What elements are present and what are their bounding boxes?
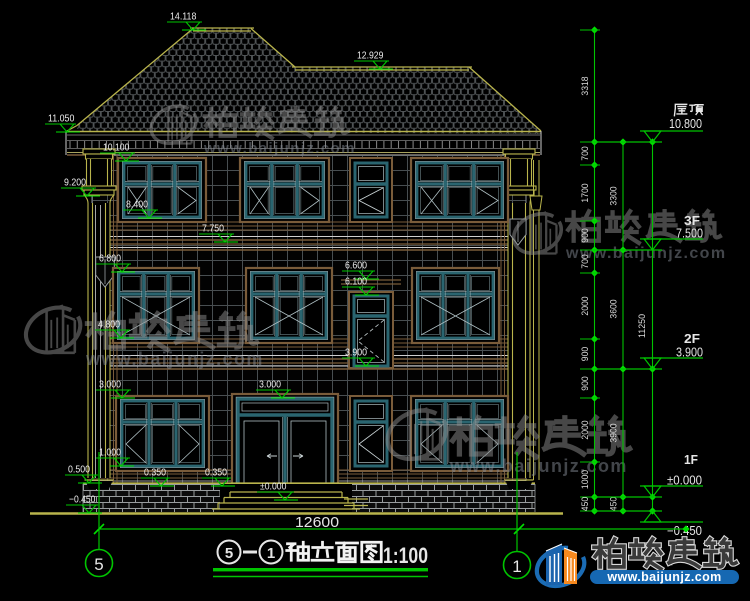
svg-text:700: 700: [580, 254, 591, 268]
svg-text:0.500: 0.500: [68, 464, 90, 476]
svg-text:3.900: 3.900: [676, 346, 703, 360]
svg-text:12.929: 12.929: [357, 50, 384, 62]
svg-text:5: 5: [225, 545, 233, 562]
svg-text:10.100: 10.100: [103, 142, 130, 154]
svg-text:1.000: 1.000: [99, 447, 121, 459]
svg-text:12600: 12600: [295, 514, 339, 531]
svg-text:www.baijunjz.com: www.baijunjz.com: [606, 570, 721, 584]
svg-text:±0.000: ±0.000: [667, 474, 702, 488]
svg-text:7.750: 7.750: [202, 223, 224, 235]
svg-text:450: 450: [580, 497, 591, 511]
svg-text:900: 900: [580, 228, 591, 242]
svg-text:www.baijunjz.com: www.baijunjz.com: [449, 456, 628, 476]
svg-text:2000: 2000: [580, 296, 591, 315]
svg-text:6.800: 6.800: [99, 253, 121, 265]
svg-text:www.baijunjz.com: www.baijunjz.com: [85, 349, 264, 369]
svg-text:2F: 2F: [684, 332, 700, 346]
svg-text:450: 450: [609, 497, 620, 511]
svg-text:1: 1: [512, 557, 521, 576]
svg-text:1700: 1700: [580, 183, 591, 202]
svg-text:3318: 3318: [580, 76, 591, 95]
svg-text:900: 900: [580, 376, 591, 390]
svg-text:8.400: 8.400: [126, 199, 148, 211]
svg-text:14.118: 14.118: [170, 11, 197, 23]
svg-text:www.baijunjz.com: www.baijunjz.com: [203, 140, 356, 157]
svg-text:0.350: 0.350: [144, 467, 166, 479]
svg-text:±0.000: ±0.000: [260, 481, 287, 493]
svg-text:6.600: 6.600: [345, 260, 367, 272]
svg-text:3600: 3600: [609, 299, 620, 318]
svg-text:1F: 1F: [684, 453, 698, 467]
svg-text:3.900: 3.900: [345, 347, 367, 359]
svg-text:3900: 3900: [609, 423, 620, 442]
svg-text:11250: 11250: [637, 314, 648, 338]
svg-text:900: 900: [580, 347, 591, 361]
svg-text:700: 700: [580, 146, 591, 160]
svg-text:0.350: 0.350: [205, 467, 227, 479]
svg-text:1: 1: [267, 545, 275, 562]
svg-text:6.100: 6.100: [345, 276, 367, 288]
svg-text:5: 5: [94, 555, 103, 574]
svg-text:7.500: 7.500: [676, 227, 703, 241]
svg-text:3.000: 3.000: [259, 379, 281, 391]
svg-text:−0.450: −0.450: [69, 494, 96, 506]
svg-text:2000: 2000: [580, 420, 591, 439]
svg-text:1000: 1000: [580, 470, 591, 489]
svg-text:4.800: 4.800: [98, 319, 120, 331]
svg-text:10.800: 10.800: [669, 117, 702, 131]
svg-text:1:100: 1:100: [383, 543, 428, 568]
svg-text:11.050: 11.050: [48, 113, 75, 125]
svg-text:9.200: 9.200: [64, 177, 86, 189]
svg-text:3.000: 3.000: [99, 379, 121, 391]
svg-text:3300: 3300: [609, 186, 620, 205]
